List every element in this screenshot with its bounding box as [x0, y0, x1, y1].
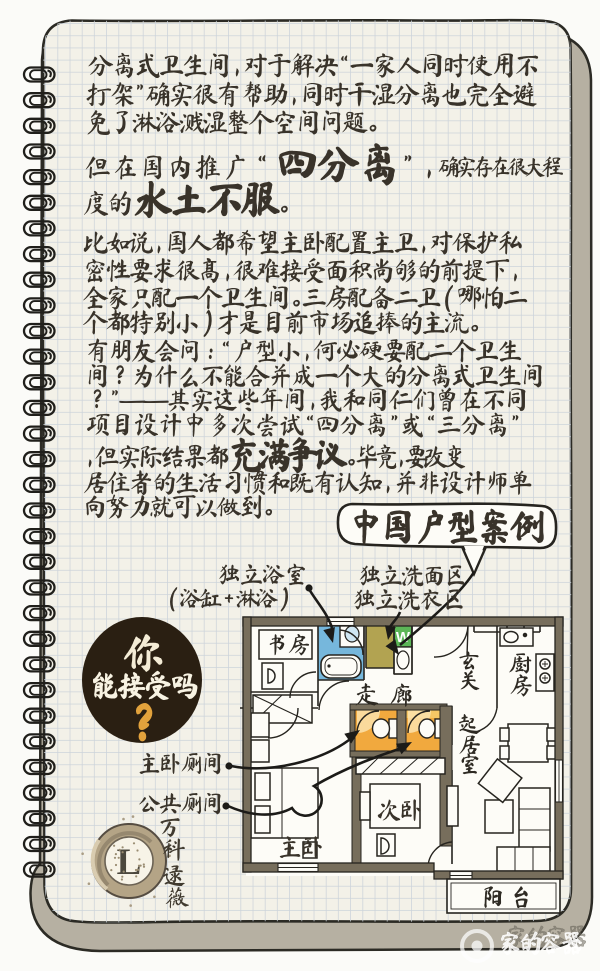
- svg-text:（浴缸＋淋浴）: （浴缸＋淋浴）: [162, 586, 297, 612]
- svg-text:家的容器: 家的容器: [498, 930, 585, 955]
- svg-text:公共厕间: 公共厕间: [138, 791, 225, 815]
- svg-text:但在国内推广: 但在国内推广: [84, 154, 249, 181]
- svg-text:四分离: 四分离: [276, 142, 402, 186]
- svg-text:书房: 书房: [266, 633, 311, 656]
- svg-text:，但实际结果都: ，但实际结果都: [77, 444, 230, 470]
- svg-text:次卧: 次卧: [377, 797, 424, 822]
- svg-text:“: “: [258, 151, 266, 181]
- svg-text:向努力就可以做到。: 向努力就可以做到。: [82, 494, 288, 520]
- svg-text:独立浴室: 独立浴室: [217, 562, 308, 586]
- svg-text:？”——其实这些年间，我和同仁们曾在不同: ？”——其实这些年间，我和同仁们曾在不同: [85, 387, 530, 413]
- svg-text:确实存在很大程: 确实存在很大程: [437, 155, 564, 178]
- svg-text:能接受吗: 能接受吗: [90, 670, 199, 700]
- svg-text:有朋友会问：“户型小，何必硬要配二个卫生: 有朋友会问：“户型小，何必硬要配二个卫生: [85, 338, 524, 364]
- svg-text:中国户型案例: 中国户型案例: [348, 508, 546, 545]
- svg-text:分离式卫生间，对于解决“一家人同时使用不: 分离式卫生间，对于解决“一家人同时使用不: [87, 52, 541, 79]
- svg-text:独立洗面区: 独立洗面区: [358, 563, 468, 587]
- svg-text:。毕竟，要改变: 。毕竟，要改变: [345, 444, 469, 470]
- svg-text:度的: 度的: [83, 190, 134, 217]
- svg-text:密性要求很高，很难接受面积尚够的前提下，: 密性要求很高，很难接受面积尚够的前提下，: [82, 257, 529, 284]
- svg-text:打架”确实很有帮助，同时干湿分离也完全避: 打架”确实很有帮助，同时干湿分离也完全避: [85, 81, 538, 108]
- svg-text:比如说，国人都希望主卧配置主卫，对保护私: 比如说，国人都希望主卧配置主卫，对保护私: [82, 229, 524, 256]
- svg-text:玄关: 玄关: [458, 649, 481, 691]
- svg-text:你: 你: [122, 631, 165, 674]
- svg-text:厨房: 厨房: [508, 651, 533, 697]
- svg-text:主卧: 主卧: [278, 834, 325, 859]
- svg-text:主卧厕间: 主卧厕间: [138, 751, 225, 775]
- svg-text:居住者的生活习惯和既有认知，并非设计师单: 居住者的生活习惯和既有认知，并非设计师单: [83, 469, 534, 496]
- svg-text:全家只配一个卫生间。三房配备二卫（哪怕二: 全家只配一个卫生间。三房配备二卫（哪怕二: [82, 285, 529, 312]
- svg-text:？: ？: [119, 698, 169, 748]
- svg-text:充满争议: 充满争议: [228, 436, 350, 473]
- svg-text:间？为什么不能合并成一个大的分离式卫生间: 间？为什么不能合并成一个大的分离式卫生间: [85, 363, 546, 389]
- svg-text:独立洗衣区: 独立洗衣区: [352, 587, 466, 611]
- svg-text:水土不服: 水土不服: [133, 178, 281, 219]
- svg-text:起居室: 起居室: [459, 712, 482, 775]
- svg-text:个都特别小）才是目前市场追捧的主流。: 个都特别小）才是目前市场追捧的主流。: [82, 309, 494, 337]
- svg-text:。: 。: [278, 190, 305, 217]
- svg-text:免了淋浴溅湿整个空间问题。: 免了淋浴溅湿整个空间问题。: [85, 109, 393, 136]
- svg-text:L: L: [117, 842, 142, 883]
- svg-text:项目设计中多次尝试“四分离”或“三分离”: 项目设计中多次尝试“四分离”或“三分离”: [85, 412, 519, 438]
